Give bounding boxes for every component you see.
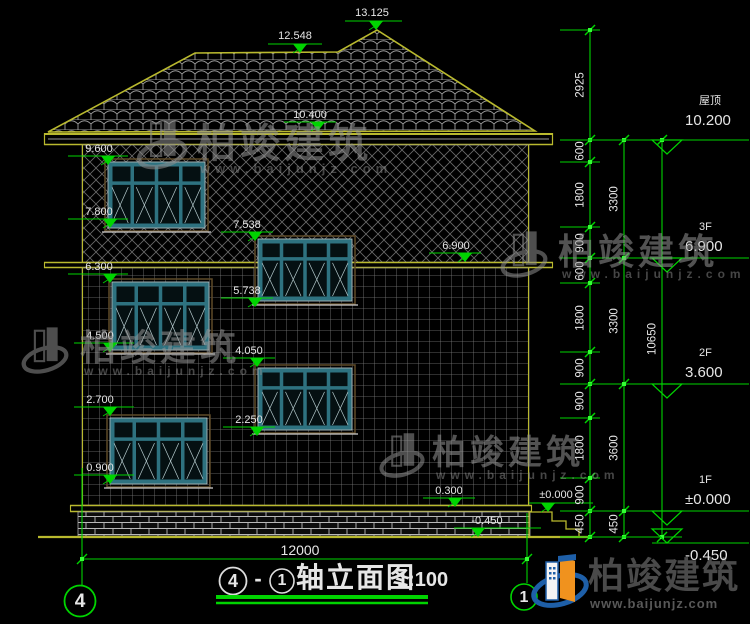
brick-plinth xyxy=(78,512,530,536)
window-2 xyxy=(252,236,358,305)
title-graphics xyxy=(216,568,428,604)
elevation-drawing-canvas: 12000 4 1 4 - 1 轴立面图 1:100 柏竣建筑 www.baij… xyxy=(0,0,750,624)
window-4 xyxy=(252,365,358,434)
eaves-fascia xyxy=(44,133,553,145)
cad-linework xyxy=(0,0,750,624)
base-belt xyxy=(70,505,532,512)
window-1 xyxy=(102,159,211,232)
axis-bubbles xyxy=(65,584,538,617)
dimension-chains xyxy=(560,25,682,542)
entry-steps xyxy=(529,512,579,537)
roof xyxy=(48,30,535,132)
brand-logo-icon xyxy=(530,554,590,611)
window-5 xyxy=(104,415,213,488)
